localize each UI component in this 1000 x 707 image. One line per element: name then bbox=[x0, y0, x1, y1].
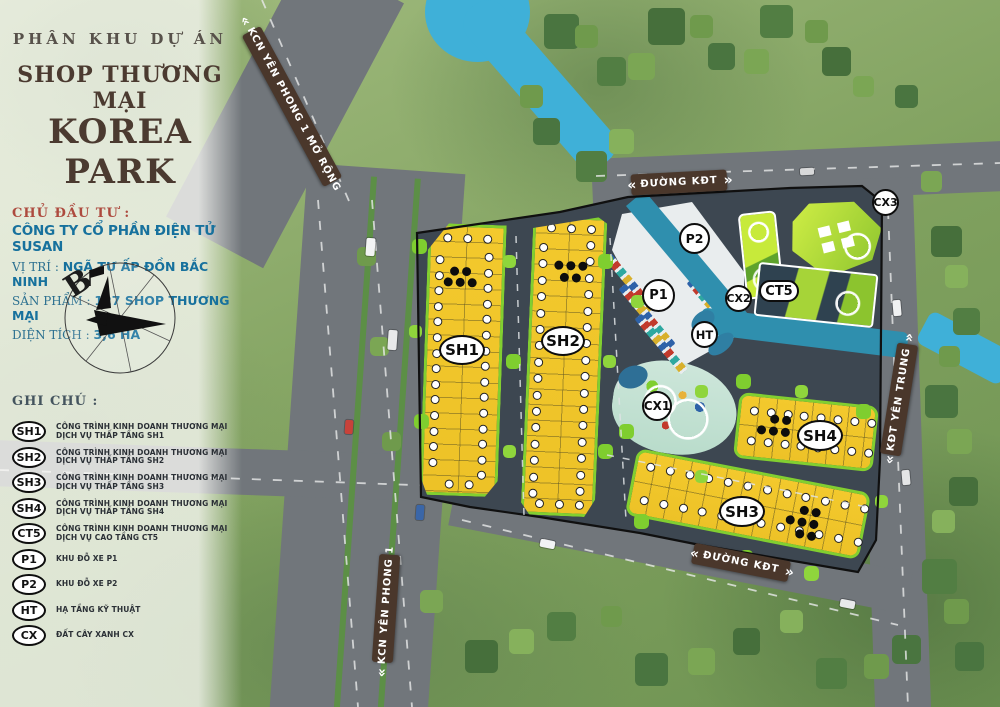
vehicle bbox=[365, 238, 375, 257]
sold-lot-dot bbox=[799, 505, 810, 516]
zone-badge-sh4: SH4 bbox=[797, 420, 843, 451]
shop-lot-marker bbox=[428, 458, 437, 467]
legend-label: KHU ĐỖ XE P1 bbox=[56, 555, 118, 563]
shop-lot-marker bbox=[850, 417, 860, 427]
shop-lot-marker bbox=[585, 274, 594, 283]
road-banner-label: KCN YÊN PHONG 1 bbox=[377, 545, 396, 664]
shop-lot-marker bbox=[863, 448, 873, 458]
shop-lot-marker bbox=[528, 489, 537, 498]
shop-lot-marker bbox=[431, 380, 440, 389]
shop-lot-marker bbox=[780, 439, 790, 449]
shop-lot-marker bbox=[445, 479, 454, 488]
road-banner-label: ĐƯỜNG KĐT bbox=[640, 175, 718, 190]
shop-lot-marker bbox=[763, 438, 773, 448]
shop-lot-marker bbox=[583, 323, 592, 332]
legend-label: CÔNG TRÌNH KINH DOANH THƯƠNG MẠI DỊCH VỤ… bbox=[56, 449, 237, 466]
shop-lot-marker bbox=[530, 439, 539, 448]
chevron-left-icon: « bbox=[627, 178, 635, 192]
shop-lot-marker bbox=[482, 331, 491, 340]
zone-badge-cx1: CX1 bbox=[642, 391, 672, 421]
vehicle bbox=[415, 505, 424, 521]
sold-lot-dot bbox=[811, 507, 822, 518]
legend-badge: P2 bbox=[12, 574, 46, 595]
project-kicker: PHÂN KHU DỰ ÁN bbox=[4, 30, 236, 48]
shop-lot-marker bbox=[578, 437, 587, 446]
shop-lot-marker bbox=[743, 481, 754, 492]
shop-lot-marker bbox=[434, 286, 443, 295]
zone-badge-ht: HT bbox=[691, 321, 718, 348]
shop-lot-marker bbox=[866, 418, 876, 428]
project-subtitle: SHOP THƯƠNG MẠI bbox=[4, 62, 236, 114]
shop-lot-marker bbox=[639, 495, 650, 506]
sold-lot-dot bbox=[794, 529, 805, 540]
bus bbox=[387, 330, 397, 351]
shop-block-sh2 bbox=[520, 215, 607, 518]
shop-lot-marker bbox=[575, 487, 584, 496]
shop-lot-marker bbox=[538, 259, 547, 268]
shop-lot-marker bbox=[479, 409, 488, 418]
shop-lot-marker bbox=[435, 255, 444, 264]
shop-lot-marker bbox=[538, 276, 547, 285]
shop-lot-marker bbox=[432, 364, 441, 373]
legend-item: P1 KHU ĐỖ XE P1 bbox=[12, 549, 237, 570]
legend-label: CÔNG TRÌNH KINH DOANH THƯƠNG MẠI DỊCH VỤ… bbox=[56, 474, 237, 491]
shop-lot-marker bbox=[532, 407, 541, 416]
vehicle bbox=[901, 470, 910, 486]
sold-lot-dot bbox=[757, 425, 767, 435]
sold-lot-dot bbox=[780, 427, 790, 437]
sold-lot-dot bbox=[444, 277, 453, 286]
shop-lot-marker bbox=[575, 501, 584, 510]
shop-lot-marker bbox=[723, 477, 734, 488]
zone-badge-ct5: CT5 bbox=[759, 280, 799, 302]
sold-lot-dot bbox=[456, 278, 465, 287]
shop-lot-marker bbox=[580, 388, 589, 397]
shop-lot-marker bbox=[665, 466, 676, 477]
legend-badge: SH1 bbox=[12, 421, 46, 442]
shop-lot-marker bbox=[578, 421, 587, 430]
shop-lot-marker bbox=[433, 317, 442, 326]
compass-rose: B bbox=[56, 248, 186, 378]
shop-lot-marker bbox=[820, 496, 831, 507]
shop-lot-marker bbox=[533, 374, 542, 383]
legend-label: CÔNG TRÌNH KINH DOANH THƯƠNG MẠI DỊCH VỤ… bbox=[56, 423, 237, 440]
shop-lot-marker bbox=[749, 406, 759, 416]
legend-item: SH3 CÔNG TRÌNH KINH DOANH THƯƠNG MẠI DỊC… bbox=[12, 472, 237, 493]
shop-lot-marker bbox=[484, 253, 493, 262]
shop-lot-marker bbox=[464, 480, 473, 489]
shop-lot-marker bbox=[478, 424, 487, 433]
shop-lot-marker bbox=[443, 233, 452, 242]
shop-lot-marker bbox=[533, 390, 542, 399]
legend-badge: P1 bbox=[12, 549, 46, 570]
legend-badge: SH4 bbox=[12, 498, 46, 519]
sold-lot-dot bbox=[554, 260, 563, 269]
legend-badge: CX bbox=[12, 625, 46, 646]
vehicle bbox=[800, 168, 814, 176]
shop-lot-marker bbox=[477, 471, 486, 480]
shop-lot-marker bbox=[584, 290, 593, 299]
shop-lot-marker bbox=[484, 268, 493, 277]
legend-item: SH1 CÔNG TRÌNH KINH DOANH THƯƠNG MẠI DỊC… bbox=[12, 421, 237, 442]
shop-lot-marker bbox=[430, 395, 439, 404]
chevron-right-icon: » bbox=[723, 173, 731, 187]
sold-lot-dot bbox=[572, 273, 581, 282]
zone-badge-sh3: SH3 bbox=[719, 496, 765, 527]
shop-lot-marker bbox=[482, 315, 491, 324]
shop-lot-marker bbox=[480, 393, 489, 402]
vehicle bbox=[892, 300, 901, 317]
shop-lot-marker bbox=[429, 442, 438, 451]
shop-lot-marker bbox=[833, 533, 844, 544]
shop-lot-marker bbox=[539, 243, 548, 252]
shop-lot-marker bbox=[801, 492, 812, 503]
legend-label: CÔNG TRÌNH KINH DOANH THƯƠNG MẠI DỊCH VỤ… bbox=[56, 500, 237, 517]
chevron-left-icon: « bbox=[689, 546, 699, 561]
shop-lot-marker bbox=[477, 455, 486, 464]
shop-lot-marker bbox=[535, 499, 544, 508]
sold-lot-dot bbox=[566, 261, 575, 270]
shop-lot-marker bbox=[586, 241, 595, 250]
sold-lot-dot bbox=[768, 426, 778, 436]
sold-lot-dot bbox=[450, 266, 459, 275]
zone-badge-cx3: CX3 bbox=[872, 189, 899, 216]
zone-badge-cx2: CX2 bbox=[725, 285, 752, 312]
zone-badge-sh1: SH1 bbox=[439, 335, 485, 365]
shop-lot-marker bbox=[775, 522, 786, 533]
shop-lot-marker bbox=[531, 423, 540, 432]
shop-lot-marker bbox=[530, 456, 539, 465]
vehicle bbox=[345, 420, 354, 435]
sold-lot-dot bbox=[806, 531, 817, 542]
investor-label: CHỦ ĐẦU TƯ : bbox=[12, 206, 236, 221]
shop-lot-marker bbox=[429, 426, 438, 435]
legend-item: SH2 CÔNG TRÌNH KINH DOANH THƯƠNG MẠI DỊC… bbox=[12, 447, 237, 468]
legend-title: GHI CHÚ : bbox=[12, 394, 237, 409]
shop-lot-marker bbox=[800, 411, 810, 421]
shop-lot-marker bbox=[840, 500, 851, 511]
legend-badge: CT5 bbox=[12, 523, 46, 544]
shop-lot-marker bbox=[781, 488, 792, 499]
sold-lot-dot bbox=[797, 517, 808, 528]
shop-lot-marker bbox=[567, 224, 576, 233]
shop-lot-marker bbox=[587, 225, 596, 234]
shop-lot-marker bbox=[697, 507, 708, 518]
sold-lot-dot bbox=[782, 415, 792, 425]
shop-lot-marker bbox=[430, 411, 439, 420]
legend-label: CÔNG TRÌNH KINH DOANH THƯƠNG MẠI DỊCH VỤ… bbox=[56, 525, 237, 542]
shop-lot-marker bbox=[583, 306, 592, 315]
masterplan-poster: « KCN YÊN PHONG 1 MỞ RỘNG « ĐƯỜNG KĐT » … bbox=[0, 0, 1000, 707]
shop-lot-marker bbox=[536, 308, 545, 317]
shop-lot-marker bbox=[480, 377, 489, 386]
shop-lot-marker bbox=[478, 440, 487, 449]
legend-badge: SH2 bbox=[12, 447, 46, 468]
legend-item: P2 KHU ĐỖ XE P2 bbox=[12, 574, 237, 595]
shop-lot-marker bbox=[555, 500, 564, 509]
shop-lot-marker bbox=[483, 235, 492, 244]
location-label: VỊ TRÍ : bbox=[12, 260, 59, 274]
legend-item: CT5 CÔNG TRÌNH KINH DOANH THƯƠNG MẠI DỊC… bbox=[12, 523, 237, 544]
chevron-left-icon: « bbox=[374, 670, 388, 678]
shop-lot-marker bbox=[684, 470, 695, 481]
shop-lot-marker bbox=[746, 436, 756, 446]
shop-lot-marker bbox=[581, 356, 590, 365]
legend-label: ĐẤT CÂY XANH CX bbox=[56, 631, 134, 639]
sold-lot-dot bbox=[809, 519, 820, 530]
sold-lot-dot bbox=[468, 278, 477, 287]
legend-badge: SH3 bbox=[12, 472, 46, 493]
shop-lot-marker bbox=[576, 470, 585, 479]
sold-lot-dot bbox=[770, 414, 780, 424]
legend-item: CX ĐẤT CÂY XANH CX bbox=[12, 625, 237, 646]
shop-lot-marker bbox=[483, 284, 492, 293]
sold-lot-dot bbox=[785, 515, 796, 526]
sold-lot-dot bbox=[560, 273, 569, 282]
shop-lot-marker bbox=[704, 473, 715, 484]
shop-lot-marker bbox=[481, 362, 490, 371]
zone-badge-sh2: SH2 bbox=[541, 326, 585, 356]
legend-item: HT HẠ TẦNG KỸ THUẬT bbox=[12, 600, 237, 621]
shop-lot-marker bbox=[577, 454, 586, 463]
shop-lot-marker bbox=[678, 503, 689, 514]
shop-lot-marker bbox=[847, 446, 857, 456]
shop-lot-marker bbox=[433, 333, 442, 342]
shop-lot-marker bbox=[463, 234, 472, 243]
project-title: KOREA PARK bbox=[4, 112, 236, 192]
shop-lot-marker bbox=[762, 485, 773, 496]
legend-badge: HT bbox=[12, 600, 46, 621]
shop-lot-marker bbox=[483, 299, 492, 308]
shop-lot-marker bbox=[534, 357, 543, 366]
shop-lot-marker bbox=[435, 271, 444, 280]
zone-badge-p2: P2 bbox=[679, 223, 710, 254]
shop-lot-marker bbox=[434, 302, 443, 311]
shop-lot-marker bbox=[537, 292, 546, 301]
legend-label: KHU ĐỖ XE P2 bbox=[56, 580, 118, 588]
sold-lot-dot bbox=[462, 267, 471, 276]
zone-badge-p1: P1 bbox=[642, 279, 675, 312]
legend: GHI CHÚ : SH1 CÔNG TRÌNH KINH DOANH THƯƠ… bbox=[12, 394, 237, 651]
shop-lot-marker bbox=[645, 462, 656, 473]
shop-lot-marker bbox=[580, 372, 589, 381]
legend-item: SH4 CÔNG TRÌNH KINH DOANH THƯƠNG MẠI DỊC… bbox=[12, 498, 237, 519]
legend-label: HẠ TẦNG KỸ THUẬT bbox=[56, 606, 141, 614]
sold-lot-dot bbox=[578, 262, 587, 271]
shop-lot-marker bbox=[579, 405, 588, 414]
shop-lot-marker bbox=[529, 472, 538, 481]
shop-lot-marker bbox=[658, 499, 669, 510]
